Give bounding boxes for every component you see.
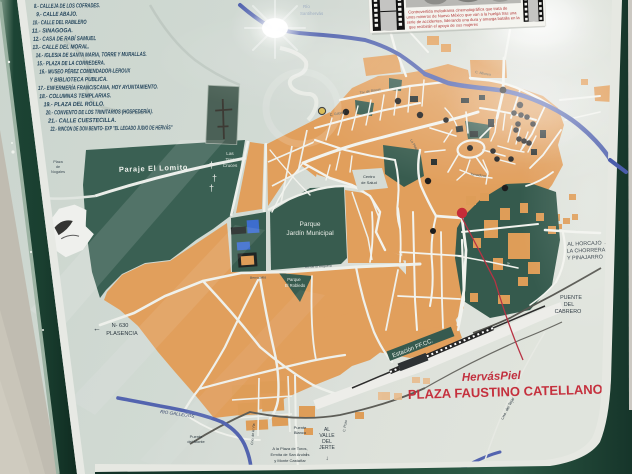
svg-text:9.- CALLE ABAJO.: 9.- CALLE ABAJO.: [36, 12, 77, 19]
svg-text:8.- CALLEJA DE LOS COFRADES.: 8.- CALLEJA DE LOS COFRADES.: [34, 3, 100, 10]
svg-text:13.- CALLE DEL MORAL.: 13.- CALLE DEL MORAL.: [32, 44, 89, 51]
svg-text:19.- PLAZA DEL ROLLO.: 19.- PLAZA DEL ROLLO.: [44, 102, 105, 109]
svg-text:HervásPiel: HervásPiel: [462, 370, 522, 384]
svg-text:15.- PLAZA DE LA CORREDERA.: 15.- PLAZA DE LA CORREDERA.: [37, 61, 105, 68]
svg-text:17.- ENFERMERÍA FRANCISCANA, H: 17.- ENFERMERÍA FRANCISCANA, HOY AYUNTAM…: [38, 84, 158, 92]
svg-text:10.- CALLE DEL RABILERO: 10.- CALLE DEL RABILERO: [33, 20, 87, 27]
svg-text:21.- CALLE CUESTECILLA.: 21.- CALLE CUESTECILLA.: [47, 118, 116, 125]
svg-text:Y BIBLIOTECA PUBLICA.: Y BIBLIOTECA PUBLICA.: [50, 77, 108, 84]
svg-text:18.- COLUMNAS TEMPLARIAS.: 18.- COLUMNAS TEMPLARIAS.: [39, 93, 111, 100]
svg-text:12.- CASA DE RABÍ SAMUEL: 12.- CASA DE RABÍ SAMUEL: [33, 35, 96, 43]
svg-text:20.- CONVENTO DE LOS TRINITARI: 20.- CONVENTO DE LOS TRINITARIOS (HOSPED…: [45, 108, 153, 116]
svg-text:11.- SINAGOGA.: 11.- SINAGOGA.: [32, 28, 73, 35]
